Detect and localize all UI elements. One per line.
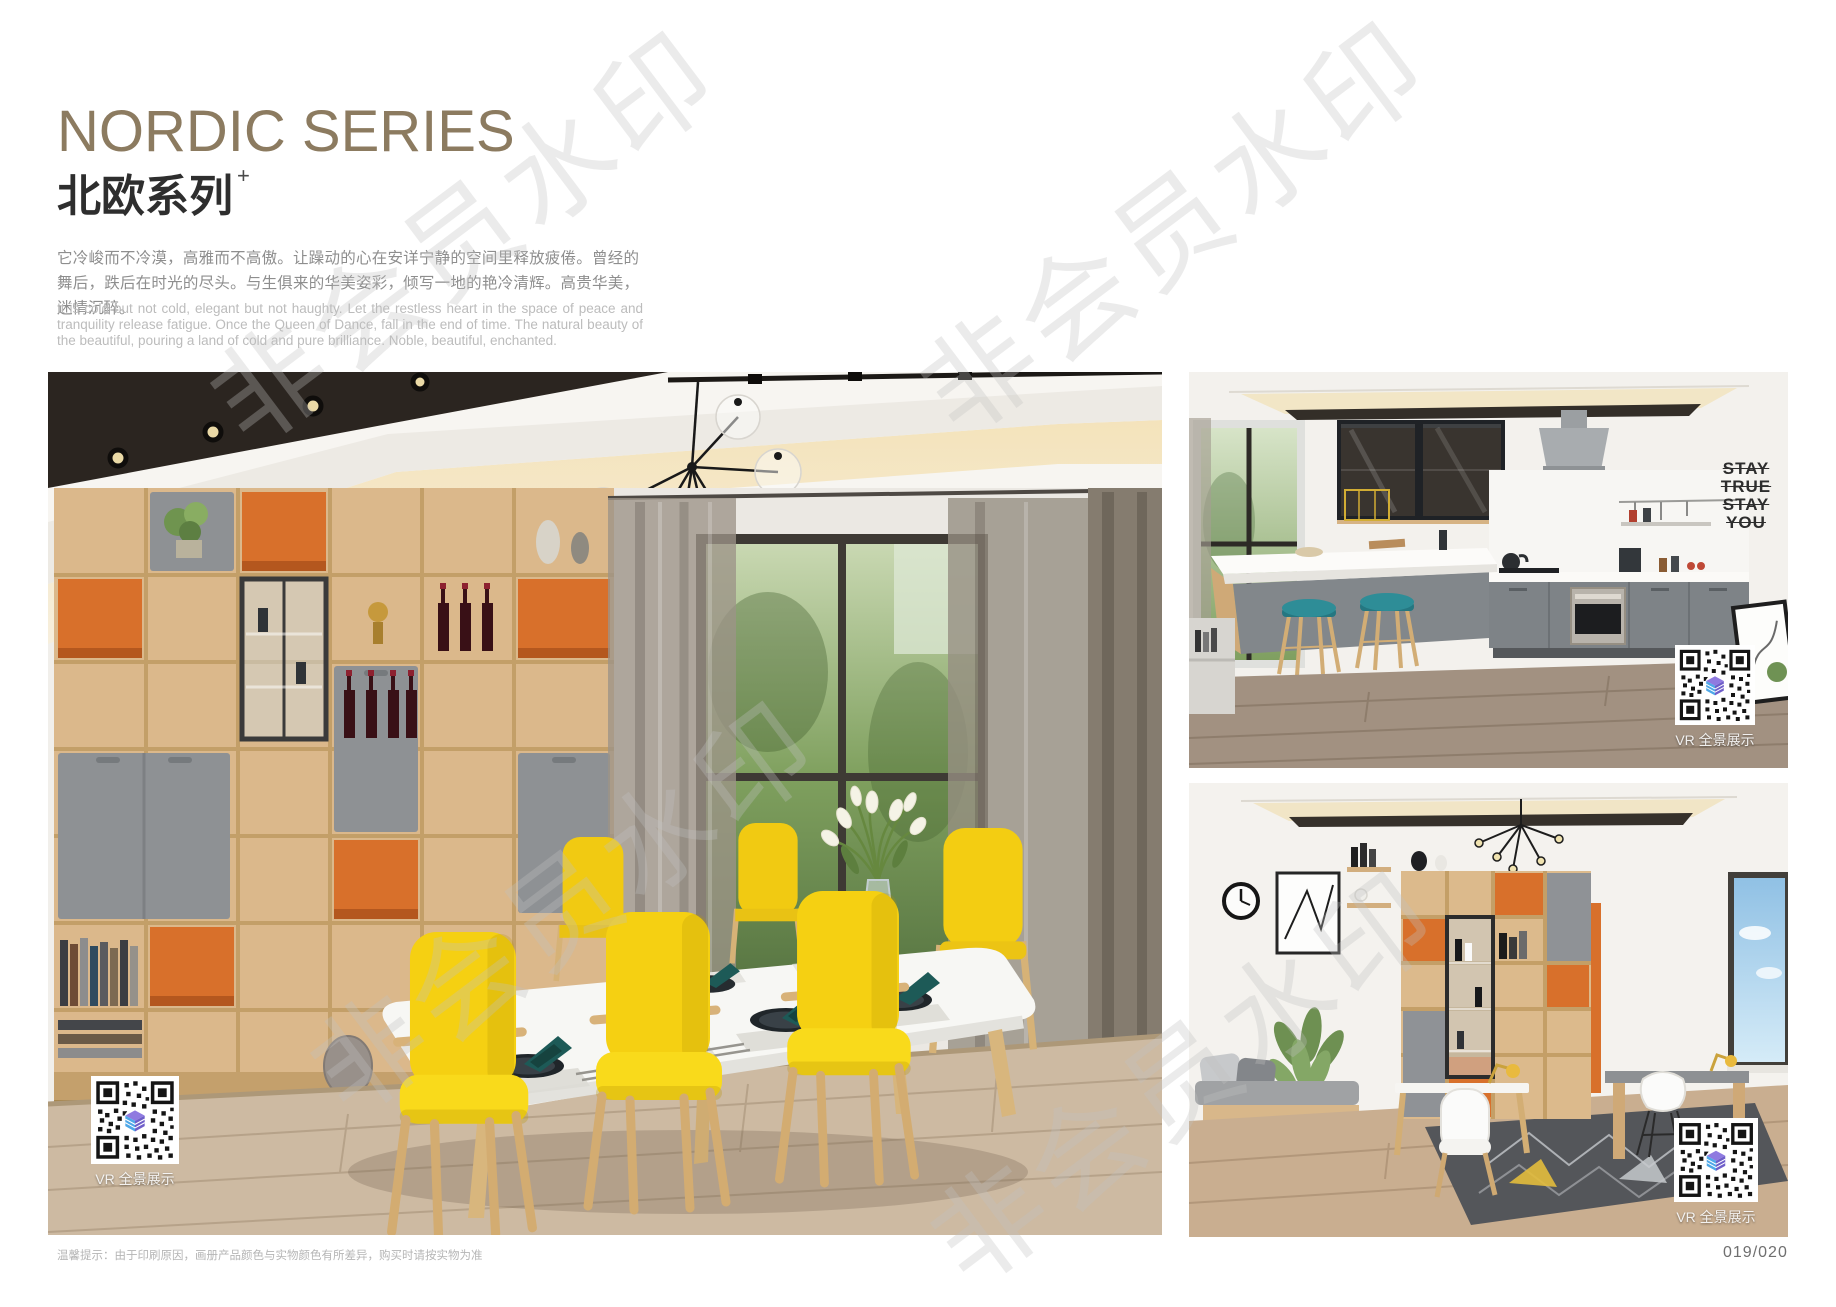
vr-qr-badge: VR 全景展示 [1674,1118,1758,1227]
intro-paragraph-en: It is cold but not cold, elegant but not… [57,301,643,349]
abstract-art-frame [1277,873,1339,953]
page-number: 019/020 [1723,1244,1788,1262]
decal-line: STAY [1713,496,1779,514]
backsplash-and-counter [1485,470,1749,582]
vr-panorama-label: VR 全景展示 [95,1169,174,1189]
study-room-photo: VR 全景展示 [1189,783,1788,1237]
small-plant [1767,662,1787,682]
glass-display-cabinet [242,579,326,739]
qr-code-icon [91,1076,179,1164]
study-shelving-unit [1401,851,1601,1119]
kitchen-ceiling [1229,386,1749,420]
decal-line: YOU [1713,514,1779,532]
wall-decal: STAY TRUE STAY YOU [1713,460,1779,532]
catalog-page: NORDIC SERIES 北欧系列+ 它冷峻而不冷漠，高雅而不高傲。让躁动的心… [0,0,1836,1307]
wall-clock [1224,884,1258,918]
qr-code-icon [1674,1118,1758,1202]
series-title-en: NORDIC SERIES [57,98,515,165]
decal-line: STAY [1713,460,1779,478]
qr-code-icon [1675,645,1755,725]
series-title-cn-text: 北欧系列 [57,172,233,221]
kitchen-photo: STAY TRUE STAY YOU VR 全景展示 [1189,372,1788,768]
vr-qr-badge: VR 全景展示 [91,1076,179,1189]
vr-qr-badge: VR 全景展示 [1675,645,1755,750]
decal-line: TRUE [1713,478,1779,496]
series-title-superscript: + [237,163,250,188]
vr-panorama-label: VR 全景展示 [1676,1207,1755,1227]
upper-cabinets [1337,422,1505,524]
vr-panorama-label: VR 全景展示 [1675,730,1754,750]
series-title-cn: 北欧系列+ [57,160,250,224]
dining-room-photo: VR 全景展示 [48,372,1162,1235]
footer-disclaimer: 温馨提示：由于印刷原因，画册产品颜色与实物颜色有所差异，购买时请按实物为准 [57,1247,483,1263]
dining-room-scene [48,372,1162,1235]
picture-window [1727,875,1788,1073]
glass-display-case [1447,917,1493,1077]
